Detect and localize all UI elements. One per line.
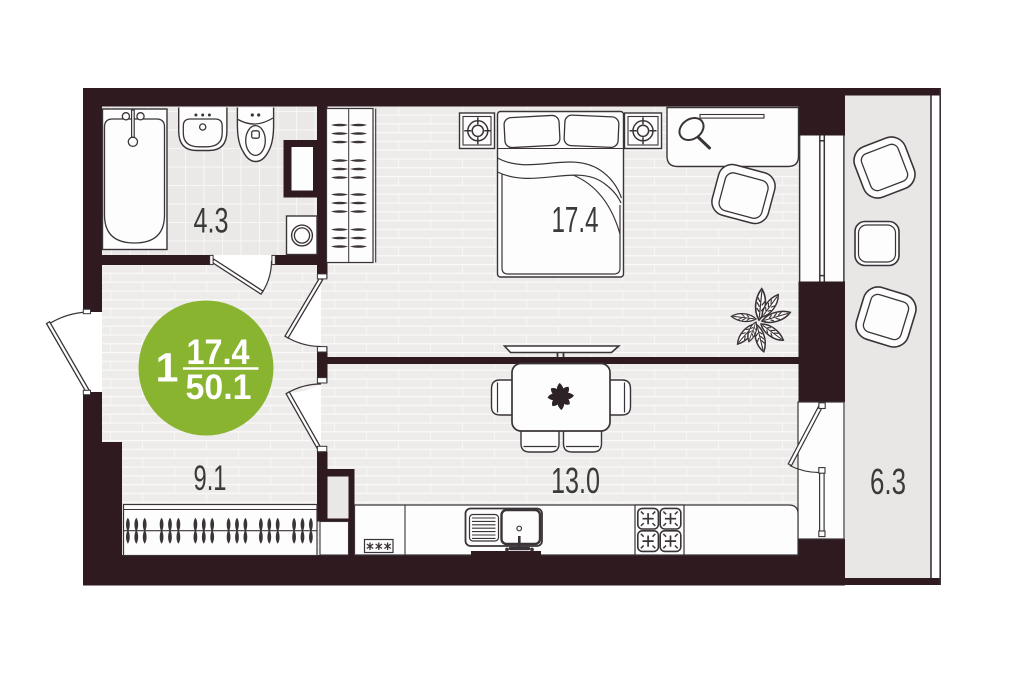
svg-text:4.3: 4.3 bbox=[194, 202, 229, 241]
svg-text:17.4: 17.4 bbox=[187, 333, 250, 372]
svg-text:9.1: 9.1 bbox=[194, 459, 227, 498]
svg-text:6.3: 6.3 bbox=[870, 461, 906, 502]
svg-text:1: 1 bbox=[156, 345, 179, 391]
svg-text:17.4: 17.4 bbox=[552, 199, 599, 240]
svg-text:13.0: 13.0 bbox=[551, 460, 600, 501]
svg-text:50.1: 50.1 bbox=[186, 368, 252, 407]
